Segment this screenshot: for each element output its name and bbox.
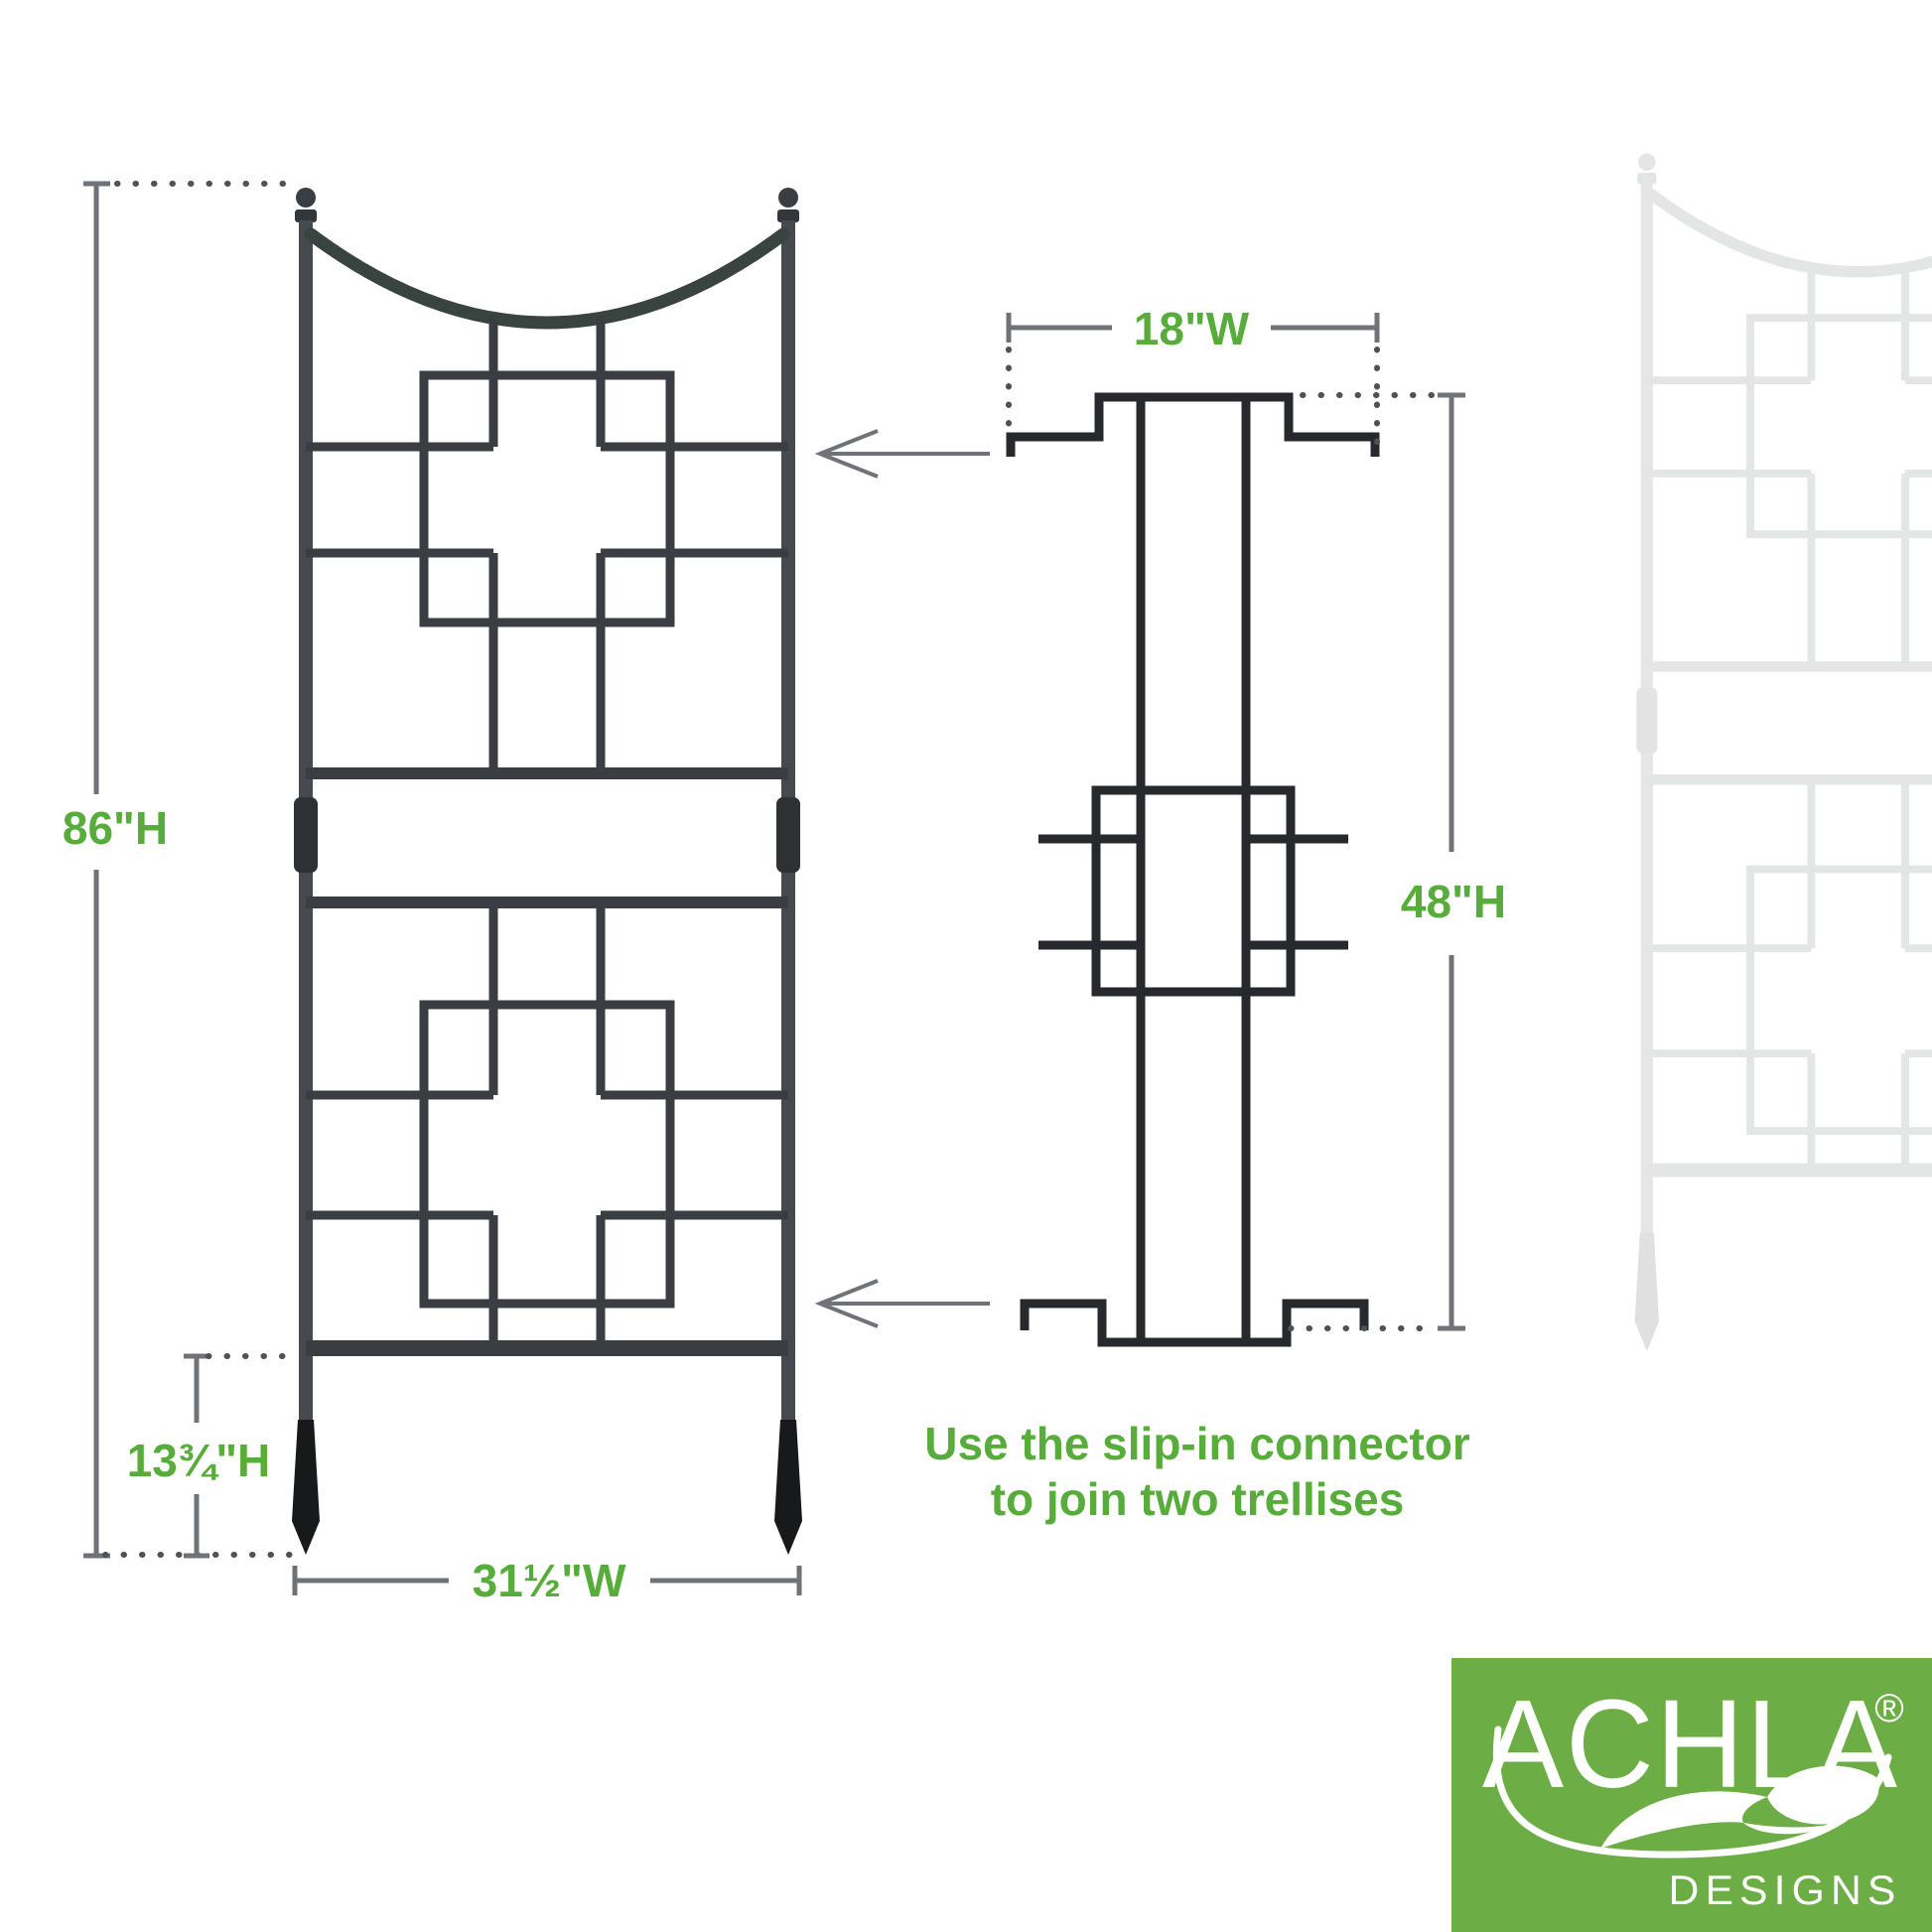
dimension-connector-width: 18"W	[1009, 303, 1377, 452]
connector-rails	[1141, 397, 1246, 1342]
arrow-left-icon	[820, 431, 990, 477]
connector-illustration	[1011, 397, 1375, 1342]
label-total-height: 86"H	[63, 802, 168, 854]
note-line-2: to join two trellises	[991, 1473, 1405, 1525]
connector-top-hooks	[1011, 397, 1375, 457]
connector-square	[1096, 790, 1291, 992]
label-connector-width: 18"W	[1134, 303, 1250, 354]
ghost-trellis	[1635, 154, 1932, 1351]
connector-bottom-hooks	[1025, 1304, 1364, 1342]
main-trellis-illustration	[292, 188, 802, 1555]
product-diagram: 86"H 13¾"H 31½"W 18"W	[0, 0, 1932, 1932]
note-line-1: Use the slip-in connector	[924, 1418, 1470, 1469]
registered-trademark-icon: ®	[1874, 1687, 1903, 1730]
dimension-total-height: 86"H	[63, 184, 300, 1556]
label-stake-height: 13¾"H	[127, 1435, 271, 1486]
trellis-dimension-diagram: 86"H 13¾"H 31½"W 18"W	[0, 0, 1932, 1932]
brand-logo: ACHLA ® DESIGNS	[1451, 1658, 1932, 1932]
label-connector-height: 48"H	[1401, 876, 1506, 927]
connector-tabs	[1038, 839, 1348, 945]
connector-note: Use the slip-in connector to join two tr…	[924, 1418, 1470, 1525]
dimension-stake-height: 13¾"H	[127, 1356, 296, 1556]
arrow-left-icon	[820, 1281, 990, 1326]
label-width: 31½"W	[473, 1555, 626, 1606]
dimension-width: 31½"W	[295, 1555, 799, 1606]
dimension-connector-height: 48"H	[1291, 395, 1506, 1328]
logo-subtitle-text: DESIGNS	[1669, 1866, 1902, 1913]
